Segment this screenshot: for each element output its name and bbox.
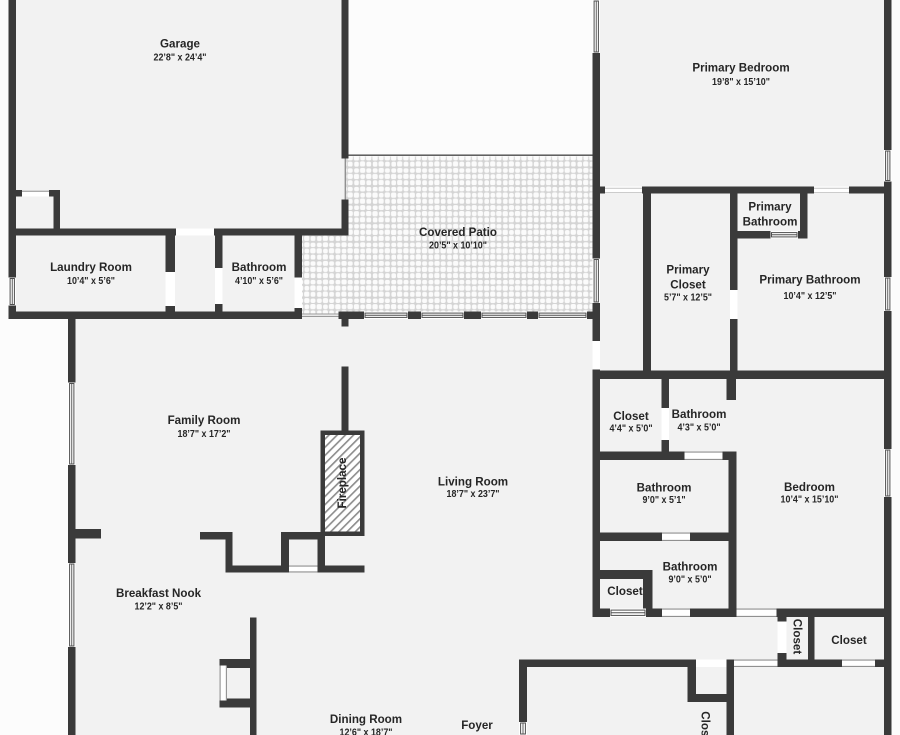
svg-text:Bathroom: Bathroom: [637, 482, 692, 495]
svg-text:12’6" x 18’7": 12’6" x 18’7": [340, 728, 393, 735]
svg-text:9’0" x 5’1": 9’0" x 5’1": [642, 495, 685, 506]
svg-text:5’7" x 12’5": 5’7" x 12’5": [664, 293, 712, 304]
svg-text:Living Room: Living Room: [438, 476, 508, 489]
svg-text:Family Room: Family Room: [168, 414, 241, 427]
svg-text:18’7" x 17’2": 18’7" x 17’2": [178, 429, 231, 440]
svg-text:Bathroom: Bathroom: [743, 216, 798, 229]
svg-text:Closet: Closet: [607, 585, 643, 598]
svg-text:4’4" x 5’0": 4’4" x 5’0": [609, 424, 652, 435]
svg-text:4’10" x 5’6": 4’10" x 5’6": [235, 276, 283, 287]
svg-text:12’2" x 8’5": 12’2" x 8’5": [135, 602, 183, 613]
svg-text:Closet: Closet: [831, 634, 867, 647]
svg-text:10’4" x 5’6": 10’4" x 5’6": [67, 276, 115, 287]
svg-text:20’5" x 10’10": 20’5" x 10’10": [429, 241, 487, 252]
svg-text:Closet: Closet: [670, 279, 706, 292]
svg-text:Laundry Room: Laundry Room: [50, 261, 132, 274]
svg-text:19’8" x 15’10": 19’8" x 15’10": [712, 77, 770, 88]
svg-text:Primary: Primary: [748, 201, 792, 214]
svg-text:Bathroom: Bathroom: [232, 261, 287, 274]
svg-text:22’8" x 24’4": 22’8" x 24’4": [154, 53, 207, 64]
svg-text:Closet: Closet: [791, 619, 804, 655]
svg-text:Breakfast Nook: Breakfast Nook: [116, 587, 202, 600]
svg-text:9’0" x 5’0": 9’0" x 5’0": [668, 575, 711, 586]
svg-text:Closet: Closet: [613, 410, 649, 423]
svg-text:Primary Bathroom: Primary Bathroom: [759, 274, 860, 287]
svg-text:Primary: Primary: [666, 264, 710, 277]
svg-text:Dining Room: Dining Room: [330, 713, 402, 726]
svg-text:Closet: Closet: [699, 711, 712, 735]
svg-text:Bedroom: Bedroom: [784, 481, 835, 494]
svg-text:Covered Patio: Covered Patio: [419, 226, 497, 239]
svg-text:Bathroom: Bathroom: [663, 561, 718, 574]
svg-text:Bathroom: Bathroom: [672, 408, 727, 421]
svg-text:Foyer: Foyer: [461, 719, 493, 732]
svg-text:Garage: Garage: [160, 38, 201, 51]
svg-text:10’4" x 15’10": 10’4" x 15’10": [781, 495, 839, 506]
svg-text:4’3" x 5’0": 4’3" x 5’0": [677, 423, 720, 434]
svg-text:Fireplace: Fireplace: [336, 457, 349, 508]
svg-text:Primary Bedroom: Primary Bedroom: [692, 62, 789, 75]
svg-text:10’4" x 12’5": 10’4" x 12’5": [784, 291, 837, 302]
svg-text:18’7" x 23’7": 18’7" x 23’7": [447, 489, 500, 500]
